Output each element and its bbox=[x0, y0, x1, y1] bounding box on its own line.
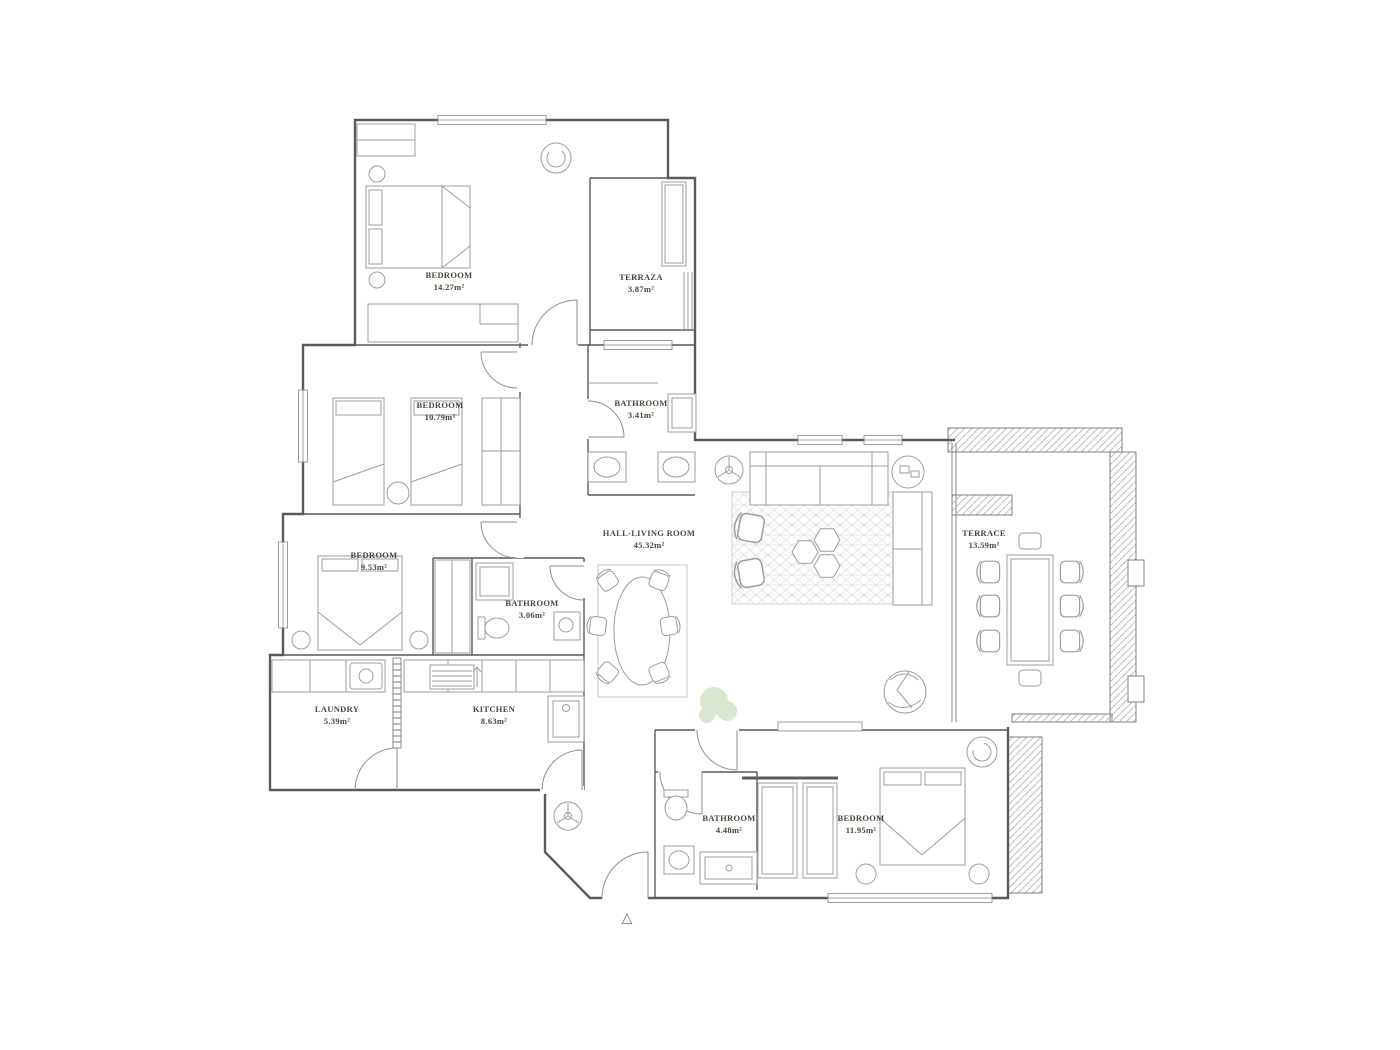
bedroom-1-furniture bbox=[357, 124, 571, 342]
tv bbox=[778, 722, 862, 731]
green-plant-icon bbox=[699, 687, 737, 723]
plant-icon bbox=[884, 671, 926, 713]
floor-plan: BEDROOM14.27m² TERRAZA3.87m² BEDROOM10.7… bbox=[0, 0, 1400, 1050]
laundry-kitchen-divider bbox=[393, 658, 401, 748]
room-area: 10.79m² bbox=[417, 412, 464, 424]
room-area: 3.06m² bbox=[505, 610, 558, 622]
room-label-bedroom-2: BEDROOM10.79m² bbox=[417, 400, 464, 424]
room-label-bathroom-3: BATHROOM4.48m² bbox=[702, 813, 755, 837]
bedroom-4-furniture bbox=[758, 737, 997, 884]
room-label-bedroom-4: BEDROOM11.95m² bbox=[838, 813, 885, 837]
room-name: BATHROOM bbox=[614, 398, 667, 408]
room-area: 3.87m² bbox=[619, 284, 663, 296]
room-label-laundry: LAUNDRY5.39m² bbox=[315, 704, 359, 728]
room-name: BEDROOM bbox=[838, 813, 885, 823]
entry-light-icon bbox=[554, 802, 582, 830]
room-area: 45.32m² bbox=[603, 540, 695, 552]
room-area: 9.53m² bbox=[351, 562, 398, 574]
laundry-furniture bbox=[272, 660, 385, 692]
light-point-icon bbox=[715, 456, 743, 484]
room-name: BEDROOM bbox=[417, 400, 464, 410]
room-area: 11.95m² bbox=[838, 825, 885, 837]
terrace-glass-wall bbox=[952, 443, 956, 722]
bathroom-3-furniture bbox=[664, 790, 757, 884]
room-label-terrace: TERRACE13.59m² bbox=[962, 528, 1006, 552]
room-label-bedroom-3: BEDROOM9.53m² bbox=[351, 550, 398, 574]
room-label-bedroom-1: BEDROOM14.27m² bbox=[426, 270, 473, 294]
room-name: BEDROOM bbox=[426, 270, 473, 280]
room-area: 8.63m² bbox=[473, 716, 515, 728]
kitchen-furniture bbox=[404, 660, 584, 742]
living-room-furniture bbox=[715, 452, 932, 731]
floor-plan-drawing bbox=[0, 0, 1400, 1050]
room-area: 4.48m² bbox=[702, 825, 755, 837]
room-area: 3.41m² bbox=[614, 410, 667, 422]
room-name: KITCHEN bbox=[473, 704, 515, 714]
terrace-furniture bbox=[977, 533, 1083, 686]
room-name: TERRAZA bbox=[619, 272, 663, 282]
dining-area bbox=[586, 565, 687, 697]
room-area: 14.27m² bbox=[426, 282, 473, 294]
room-label-bathroom-2: BATHROOM3.06m² bbox=[505, 598, 558, 622]
room-area: 5.39m² bbox=[315, 716, 359, 728]
room-name: HALL-LIVING ROOM bbox=[603, 528, 695, 538]
room-label-terraza: TERRAZA3.87m² bbox=[619, 272, 663, 296]
terrace-wall-stub bbox=[952, 495, 1012, 515]
north-arrow-icon: △ bbox=[622, 910, 633, 926]
room-area: 13.59m² bbox=[962, 540, 1006, 552]
room-label-bathroom-1: BATHROOM3.41m² bbox=[614, 398, 667, 422]
room-label-kitchen: KITCHEN8.63m² bbox=[473, 704, 515, 728]
room-label-hall-living: HALL-LIVING ROOM45.32m² bbox=[603, 528, 695, 552]
room-name: BATHROOM bbox=[702, 813, 755, 823]
room-name: TERRACE bbox=[962, 528, 1006, 538]
room-name: BATHROOM bbox=[505, 598, 558, 608]
room-name: LAUNDRY bbox=[315, 704, 359, 714]
terraza-furniture bbox=[662, 182, 692, 330]
room-name: BEDROOM bbox=[351, 550, 398, 560]
